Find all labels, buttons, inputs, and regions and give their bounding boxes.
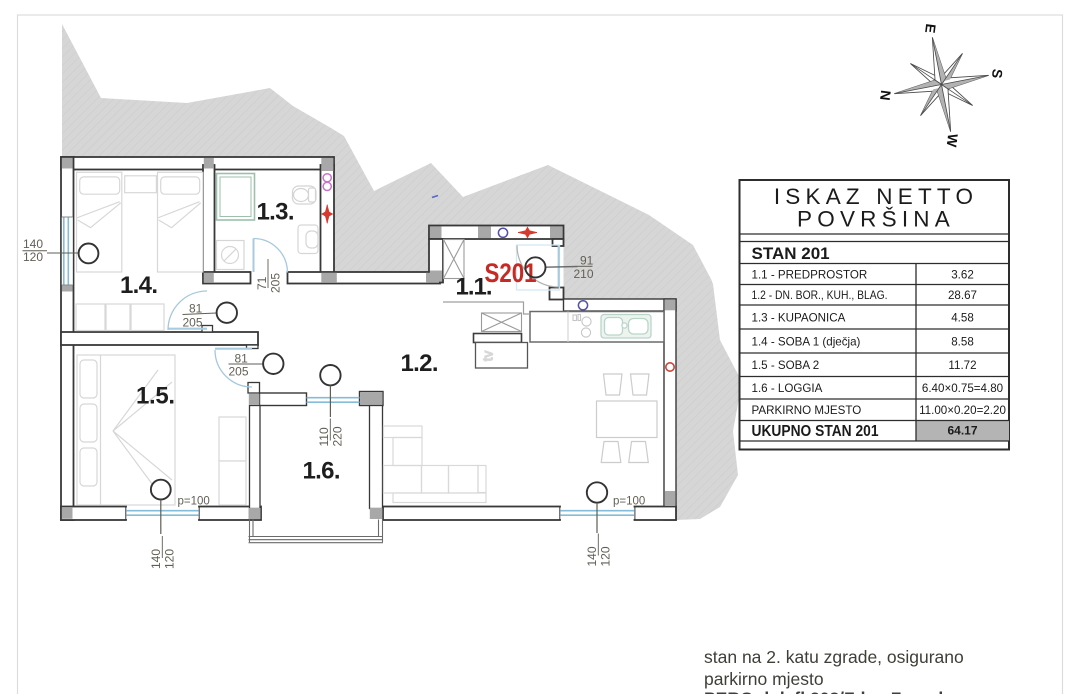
svg-text:11.72: 11.72 <box>948 359 976 372</box>
svg-text:210: 210 <box>574 267 594 281</box>
svg-text:p=100: p=100 <box>178 496 210 508</box>
svg-text:110: 110 <box>317 427 331 446</box>
svg-text:3.62: 3.62 <box>951 269 974 282</box>
svg-text:1.3 - KUPAONICA: 1.3 - KUPAONICA <box>752 312 846 325</box>
svg-text:1.5.: 1.5. <box>136 383 175 410</box>
svg-text:ISKAZ NETTO: ISKAZ NETTO <box>774 184 978 209</box>
svg-text:120: 120 <box>599 546 613 566</box>
svg-text:91: 91 <box>580 253 594 267</box>
svg-text:S: S <box>989 68 1006 79</box>
svg-text:tv: tv <box>481 351 496 362</box>
svg-text:STAN 201: STAN 201 <box>752 244 830 263</box>
svg-text:POVRŠINA: POVRŠINA <box>797 207 955 232</box>
svg-text:1.5 - SOBA 2: 1.5 - SOBA 2 <box>752 359 820 372</box>
svg-text:1.3.: 1.3. <box>257 199 295 226</box>
svg-text:p=100: p=100 <box>613 496 645 508</box>
svg-text:UKUPNO STAN 201: UKUPNO STAN 201 <box>752 423 879 440</box>
svg-text:1.2.: 1.2. <box>401 350 439 377</box>
svg-text:140: 140 <box>23 237 43 251</box>
svg-text:1.1 - PREDPROSTOR: 1.1 - PREDPROSTOR <box>752 269 868 282</box>
svg-text:220: 220 <box>331 426 345 446</box>
svg-text:S201: S201 <box>485 258 537 288</box>
svg-text:N: N <box>877 89 894 101</box>
svg-text:stan na 2. katu zgrade, osigur: stan na 2. katu zgrade, osigurano <box>704 647 964 667</box>
svg-text:6.40×0.75=4.80: 6.40×0.75=4.80 <box>922 382 1003 395</box>
svg-text:64.17: 64.17 <box>947 424 977 438</box>
svg-text:4.58: 4.58 <box>951 312 974 325</box>
svg-text:1.4 - SOBA 1 (dječja): 1.4 - SOBA 1 (dječja) <box>752 336 861 349</box>
svg-text:parkirno mjesto: parkirno mjesto <box>704 669 824 689</box>
svg-text:120: 120 <box>23 250 43 264</box>
svg-text:81: 81 <box>235 351 249 365</box>
svg-text:1.6.: 1.6. <box>303 458 341 485</box>
svg-text:140: 140 <box>149 549 163 569</box>
svg-text:120: 120 <box>163 549 177 569</box>
svg-text:71: 71 <box>255 276 269 290</box>
svg-text:PERO d.d. fl 203/Zd.o. Zagreb: PERO d.d. fl 203/Zd.o. Zagreb <box>704 689 949 694</box>
svg-text:1.6 - LOGGIA: 1.6 - LOGGIA <box>752 382 823 395</box>
svg-text:205: 205 <box>269 273 283 293</box>
svg-text:11.00×0.20=2.20: 11.00×0.20=2.20 <box>919 404 1006 417</box>
svg-text:205: 205 <box>183 315 203 329</box>
svg-text:205: 205 <box>229 365 249 379</box>
svg-text:1.4.: 1.4. <box>120 272 158 299</box>
svg-text:8.58: 8.58 <box>951 336 974 349</box>
svg-text:E: E <box>922 23 939 34</box>
svg-text:PARKIRNO MJESTO: PARKIRNO MJESTO <box>752 404 862 417</box>
svg-text:28.67: 28.67 <box>948 289 977 302</box>
svg-text:140: 140 <box>585 546 599 566</box>
svg-text:1.2 - DN. BOR., KUH., BLAG.: 1.2 - DN. BOR., KUH., BLAG. <box>752 289 888 302</box>
